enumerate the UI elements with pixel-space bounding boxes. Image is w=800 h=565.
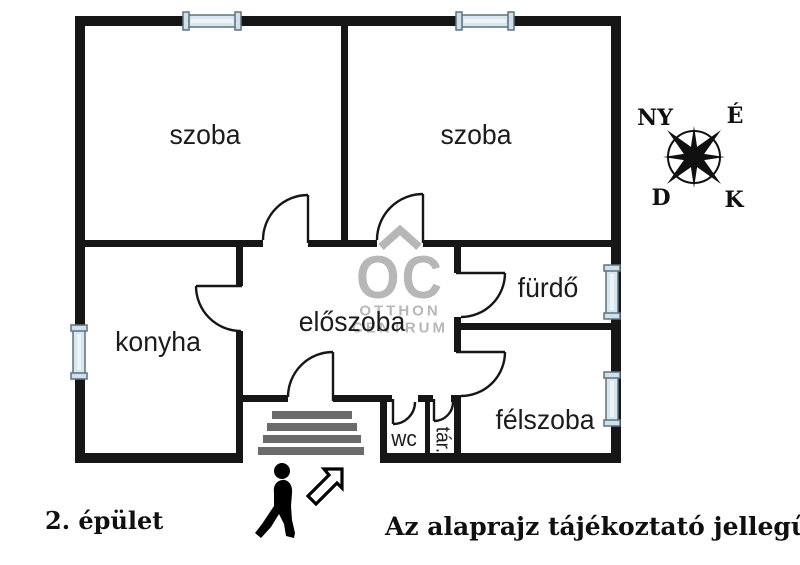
room-label-eloszoba: előszoba — [299, 306, 405, 338]
compass-label-sw: D — [651, 185, 670, 211]
building-caption: 2. épület — [45, 506, 163, 535]
labels: szoba szoba konyha előszoba fürdő félszo… — [0, 0, 800, 565]
room-label-szoba-left: szoba — [170, 119, 241, 151]
compass-label-se: K — [724, 187, 743, 213]
compass-label-ne: É — [727, 103, 744, 129]
room-label-furdo: fürdő — [518, 272, 579, 304]
compass-label-nw: NY — [637, 105, 673, 131]
room-label-konyha: konyha — [115, 326, 201, 358]
disclaimer-caption: Az alaprajz tájékoztató jellegű — [385, 512, 800, 541]
room-label-szoba-right: szoba — [441, 119, 512, 151]
room-label-wc: wc — [391, 426, 417, 452]
room-label-tar: tár. — [431, 427, 454, 453]
floorplan-canvas: OC OTTHON CENTRUM — [0, 0, 800, 565]
room-label-felszoba: félszoba — [495, 404, 594, 436]
